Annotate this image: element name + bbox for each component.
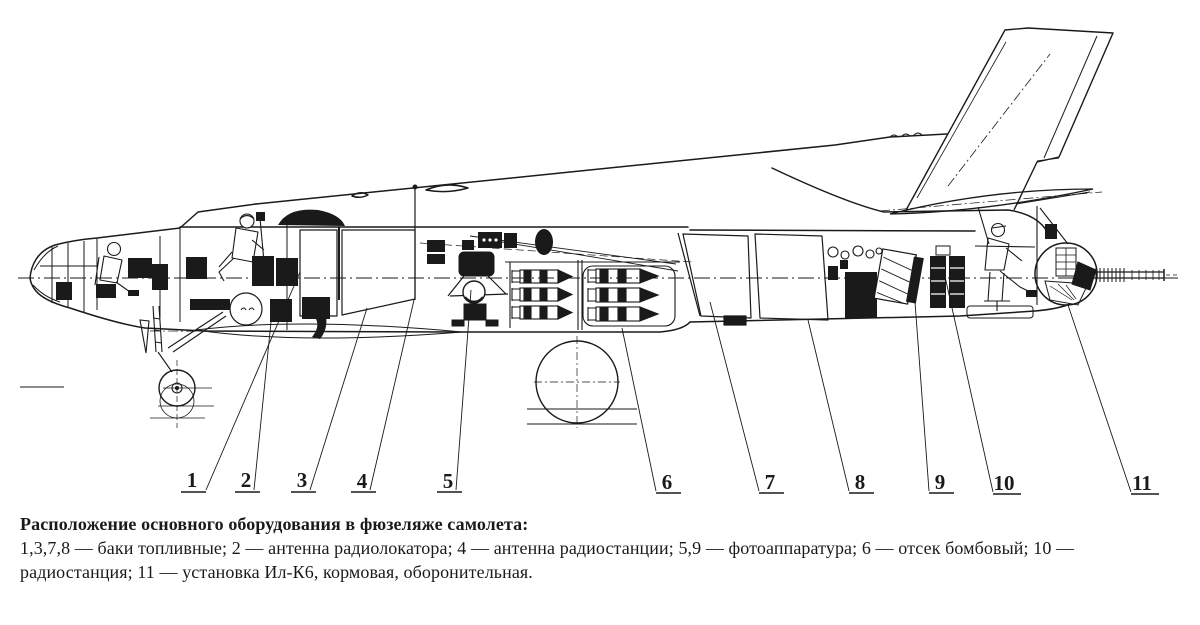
gunner-figure [984,224,1037,312]
scanned-figure-page: 1 2 3 4 5 6 7 8 9 10 11 Расположение осн… [0,0,1200,625]
callout-6: 6 [662,470,673,494]
callout-7: 7 [765,470,776,494]
nose-landing-gear [140,306,226,428]
callout-10: 10 [994,471,1015,495]
radio-station [930,246,965,308]
camera-rear [874,249,924,306]
callout-4: 4 [357,469,368,493]
wing-root-section [150,233,700,338]
fuel-tank-3 [342,230,415,315]
gunner-cabin [967,206,1068,318]
section-circle [527,336,637,428]
fuel-tank-8 [755,234,828,320]
oxygen-bottles [828,246,882,259]
figure-caption: Расположение основного оборудования в фю… [20,512,1190,584]
callout-1: 1 [187,468,198,492]
callout-2: 2 [241,468,252,492]
leader-lines [206,272,1131,492]
radar-antenna [230,293,262,325]
callout-numbers: 1 2 3 4 5 6 7 8 9 10 11 [181,468,1159,495]
bombs-aft [588,269,658,321]
tail-turret [1035,243,1178,305]
bomb-bay [505,260,680,330]
fuel-tank-7 [683,234,751,318]
callout-11: 11 [1132,471,1152,495]
callout-9: 9 [935,470,946,494]
radio-antenna [413,185,417,300]
camera-front [448,252,508,326]
tail-fin [905,28,1113,212]
callout-3: 3 [297,468,308,492]
caption-title: Расположение основного оборудования в фю… [20,512,1190,536]
callout-5: 5 [443,469,454,493]
caption-line-3: радиостанция; 11 — установка Ил-К6, корм… [20,560,1190,584]
callout-8: 8 [855,470,866,494]
caption-line-2: 1,3,7,8 — баки топливные; 2 — антенна ра… [20,536,1190,560]
bombs-forward [512,270,572,319]
aircraft-cutaway-diagram: 1 2 3 4 5 6 7 8 9 10 11 [0,0,1200,510]
